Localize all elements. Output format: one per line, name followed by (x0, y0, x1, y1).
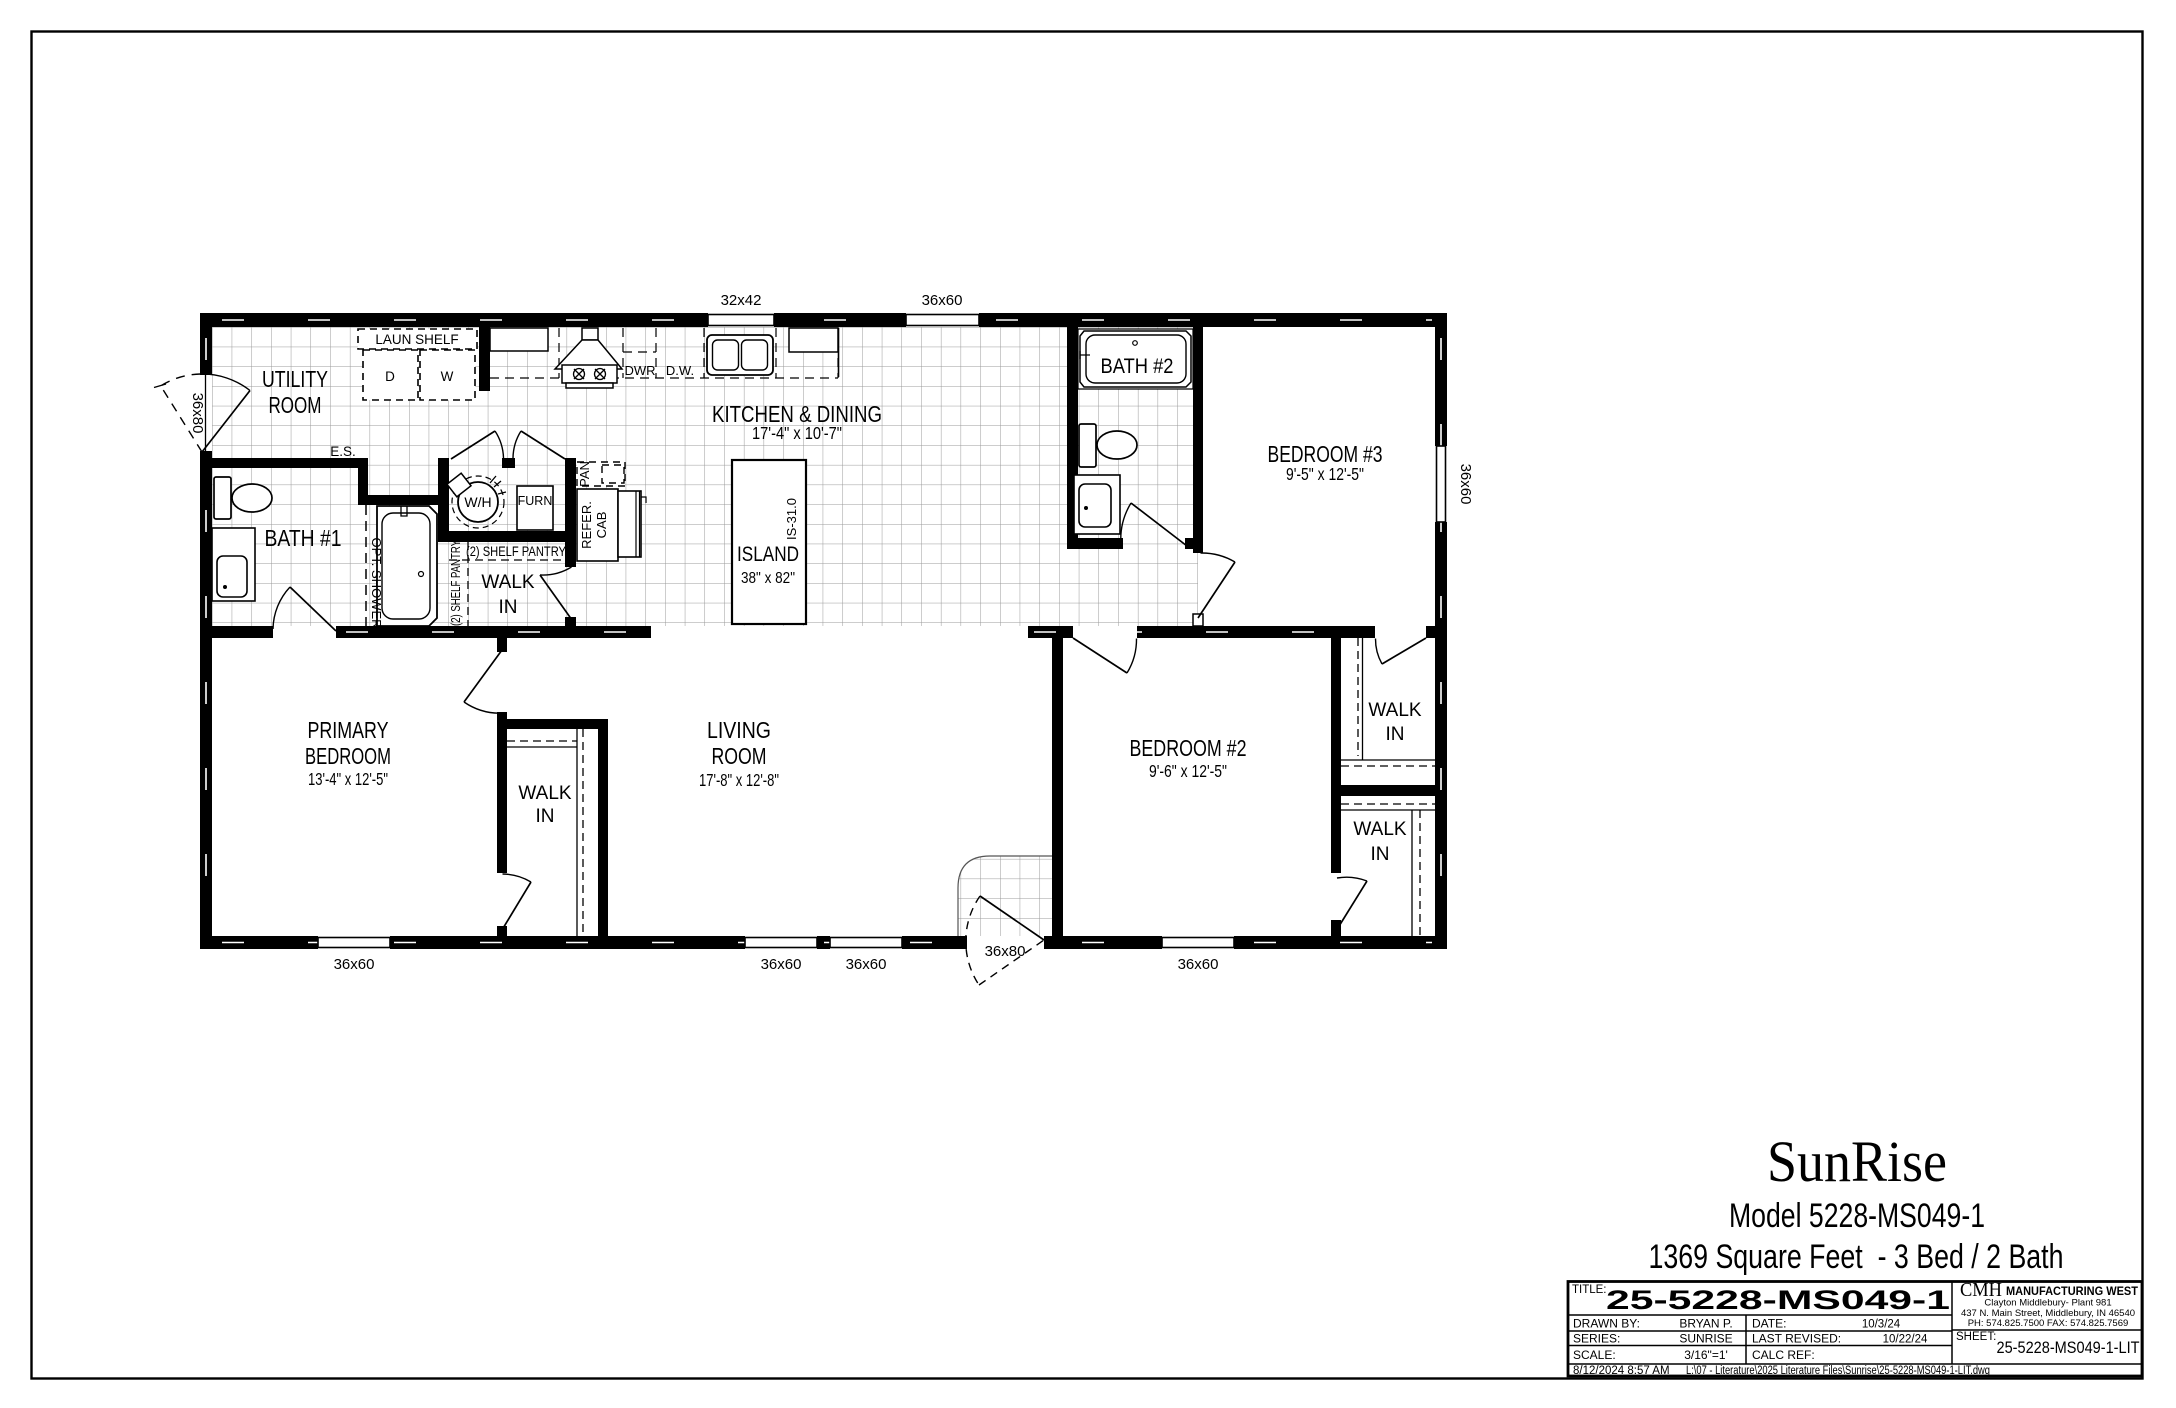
svg-text:36x60: 36x60 (761, 956, 802, 973)
svg-text:L:\07 - Literature\2025 Litera: L:\07 - Literature\2025 Literature Files… (1686, 1365, 1990, 1377)
svg-text:36x60: 36x60 (922, 292, 963, 309)
svg-text:IN: IN (499, 597, 518, 618)
svg-text:OPT. SHOWER: OPT. SHOWER (369, 537, 384, 628)
svg-text:W: W (441, 369, 454, 384)
svg-text:D: D (385, 369, 395, 384)
svg-text:Clayton Middlebury- Plant 981: Clayton Middlebury- Plant 981 (1984, 1298, 2111, 1309)
svg-text:(2) SHELF PANTRY: (2) SHELF PANTRY (449, 539, 463, 626)
svg-text:DRAWN BY:: DRAWN BY: (1573, 1317, 1640, 1331)
svg-text:SCALE:: SCALE: (1573, 1348, 1616, 1362)
svg-text:10/22/24: 10/22/24 (1883, 1334, 1928, 1346)
svg-text:UTILITY: UTILITY (262, 366, 328, 392)
svg-text:36x60: 36x60 (334, 956, 375, 973)
svg-text:FURN: FURN (518, 494, 553, 508)
svg-text:13'-4" x 12'-5": 13'-4" x 12'-5" (308, 769, 388, 789)
svg-text:Model 5228-MS049-1: Model 5228-MS049-1 (1729, 1197, 1985, 1235)
svg-text:PRIMARY: PRIMARY (308, 717, 389, 743)
svg-text:WALK: WALK (1353, 819, 1406, 840)
svg-text:CALC REF:: CALC REF: (1752, 1348, 1815, 1362)
svg-text:WALK: WALK (481, 572, 534, 593)
svg-text:25-5228-MS049-1: 25-5228-MS049-1 (1606, 1285, 1950, 1315)
svg-text:LAST REVISED:: LAST REVISED: (1752, 1332, 1841, 1346)
svg-text:IN: IN (1386, 724, 1405, 745)
svg-text:SUNRISE: SUNRISE (1679, 1332, 1732, 1346)
svg-text:E.S.: E.S. (330, 444, 356, 459)
svg-text:36x60: 36x60 (846, 956, 887, 973)
svg-text:1369 Square Feet - 3 Bed / 2: 1369 Square Feet - 3 Bed / 2 Bath (1649, 1238, 2064, 1276)
svg-text:36x80: 36x80 (189, 393, 206, 434)
svg-text:D.W.: D.W. (666, 363, 694, 378)
svg-text:SERIES:: SERIES: (1573, 1332, 1620, 1346)
svg-text:PAN: PAN (577, 461, 592, 487)
svg-text:36x80: 36x80 (985, 943, 1026, 960)
svg-text:TITLE:: TITLE: (1572, 1284, 1607, 1296)
svg-text:17'-8" x 12'-8": 17'-8" x 12'-8" (699, 770, 779, 790)
svg-text:BRYAN P.: BRYAN P. (1679, 1317, 1732, 1331)
svg-text:10/3/24: 10/3/24 (1862, 1319, 1901, 1331)
svg-text:DWR: DWR (624, 363, 655, 378)
svg-text:LAUN SHELF: LAUN SHELF (375, 332, 458, 347)
svg-text:BEDROOM: BEDROOM (305, 743, 391, 769)
svg-text:25-5228-MS049-1-LIT: 25-5228-MS049-1-LIT (1997, 1339, 2140, 1357)
svg-text:REFER.: REFER. (579, 501, 594, 549)
svg-text:(2) SHELF PANTRY: (2) SHELF PANTRY (466, 543, 567, 559)
svg-text:8/12/2024 8:57 AM: 8/12/2024 8:57 AM (1573, 1365, 1670, 1377)
svg-text:38" x 82": 38" x 82" (741, 570, 795, 587)
svg-text:32x42: 32x42 (721, 292, 762, 309)
svg-text:IN: IN (536, 806, 555, 827)
svg-text:36x60: 36x60 (1457, 464, 1474, 505)
svg-text:17'-4" x 10'-7": 17'-4" x 10'-7" (752, 423, 842, 443)
svg-text:36x60: 36x60 (1178, 956, 1219, 973)
svg-text:3/16"=1': 3/16"=1' (1684, 1348, 1728, 1362)
svg-text:BATH #1: BATH #1 (265, 525, 342, 551)
svg-text:CAB: CAB (594, 512, 609, 539)
svg-text:SHEET:: SHEET: (1956, 1331, 1996, 1343)
svg-text:DATE:: DATE: (1752, 1317, 1786, 1331)
svg-text:IS-31.0: IS-31.0 (784, 498, 799, 540)
svg-text:MANUFACTURING WEST: MANUFACTURING WEST (2006, 1284, 2139, 1298)
svg-text:WALK: WALK (518, 783, 571, 804)
svg-text:PH: 574.825.7500 FAX: 574.825.: PH: 574.825.7500 FAX: 574.825.7569 (1968, 1318, 2129, 1329)
svg-text:BEDROOM #2: BEDROOM #2 (1130, 735, 1247, 761)
svg-text:IN: IN (1371, 844, 1390, 865)
svg-text:ISLAND: ISLAND (737, 543, 799, 566)
svg-text:9'-6" x 12'-5": 9'-6" x 12'-5" (1149, 761, 1227, 781)
svg-text:LIVING: LIVING (707, 717, 771, 743)
svg-text:W/H: W/H (464, 494, 491, 510)
svg-text:ROOM: ROOM (269, 392, 322, 418)
svg-text:BATH #2: BATH #2 (1101, 355, 1174, 378)
svg-text:WALK: WALK (1368, 700, 1421, 721)
svg-text:ROOM: ROOM (712, 743, 767, 769)
svg-text:9'-5" x 12'-5": 9'-5" x 12'-5" (1286, 464, 1364, 484)
svg-text:SunRise: SunRise (1767, 1129, 1947, 1194)
